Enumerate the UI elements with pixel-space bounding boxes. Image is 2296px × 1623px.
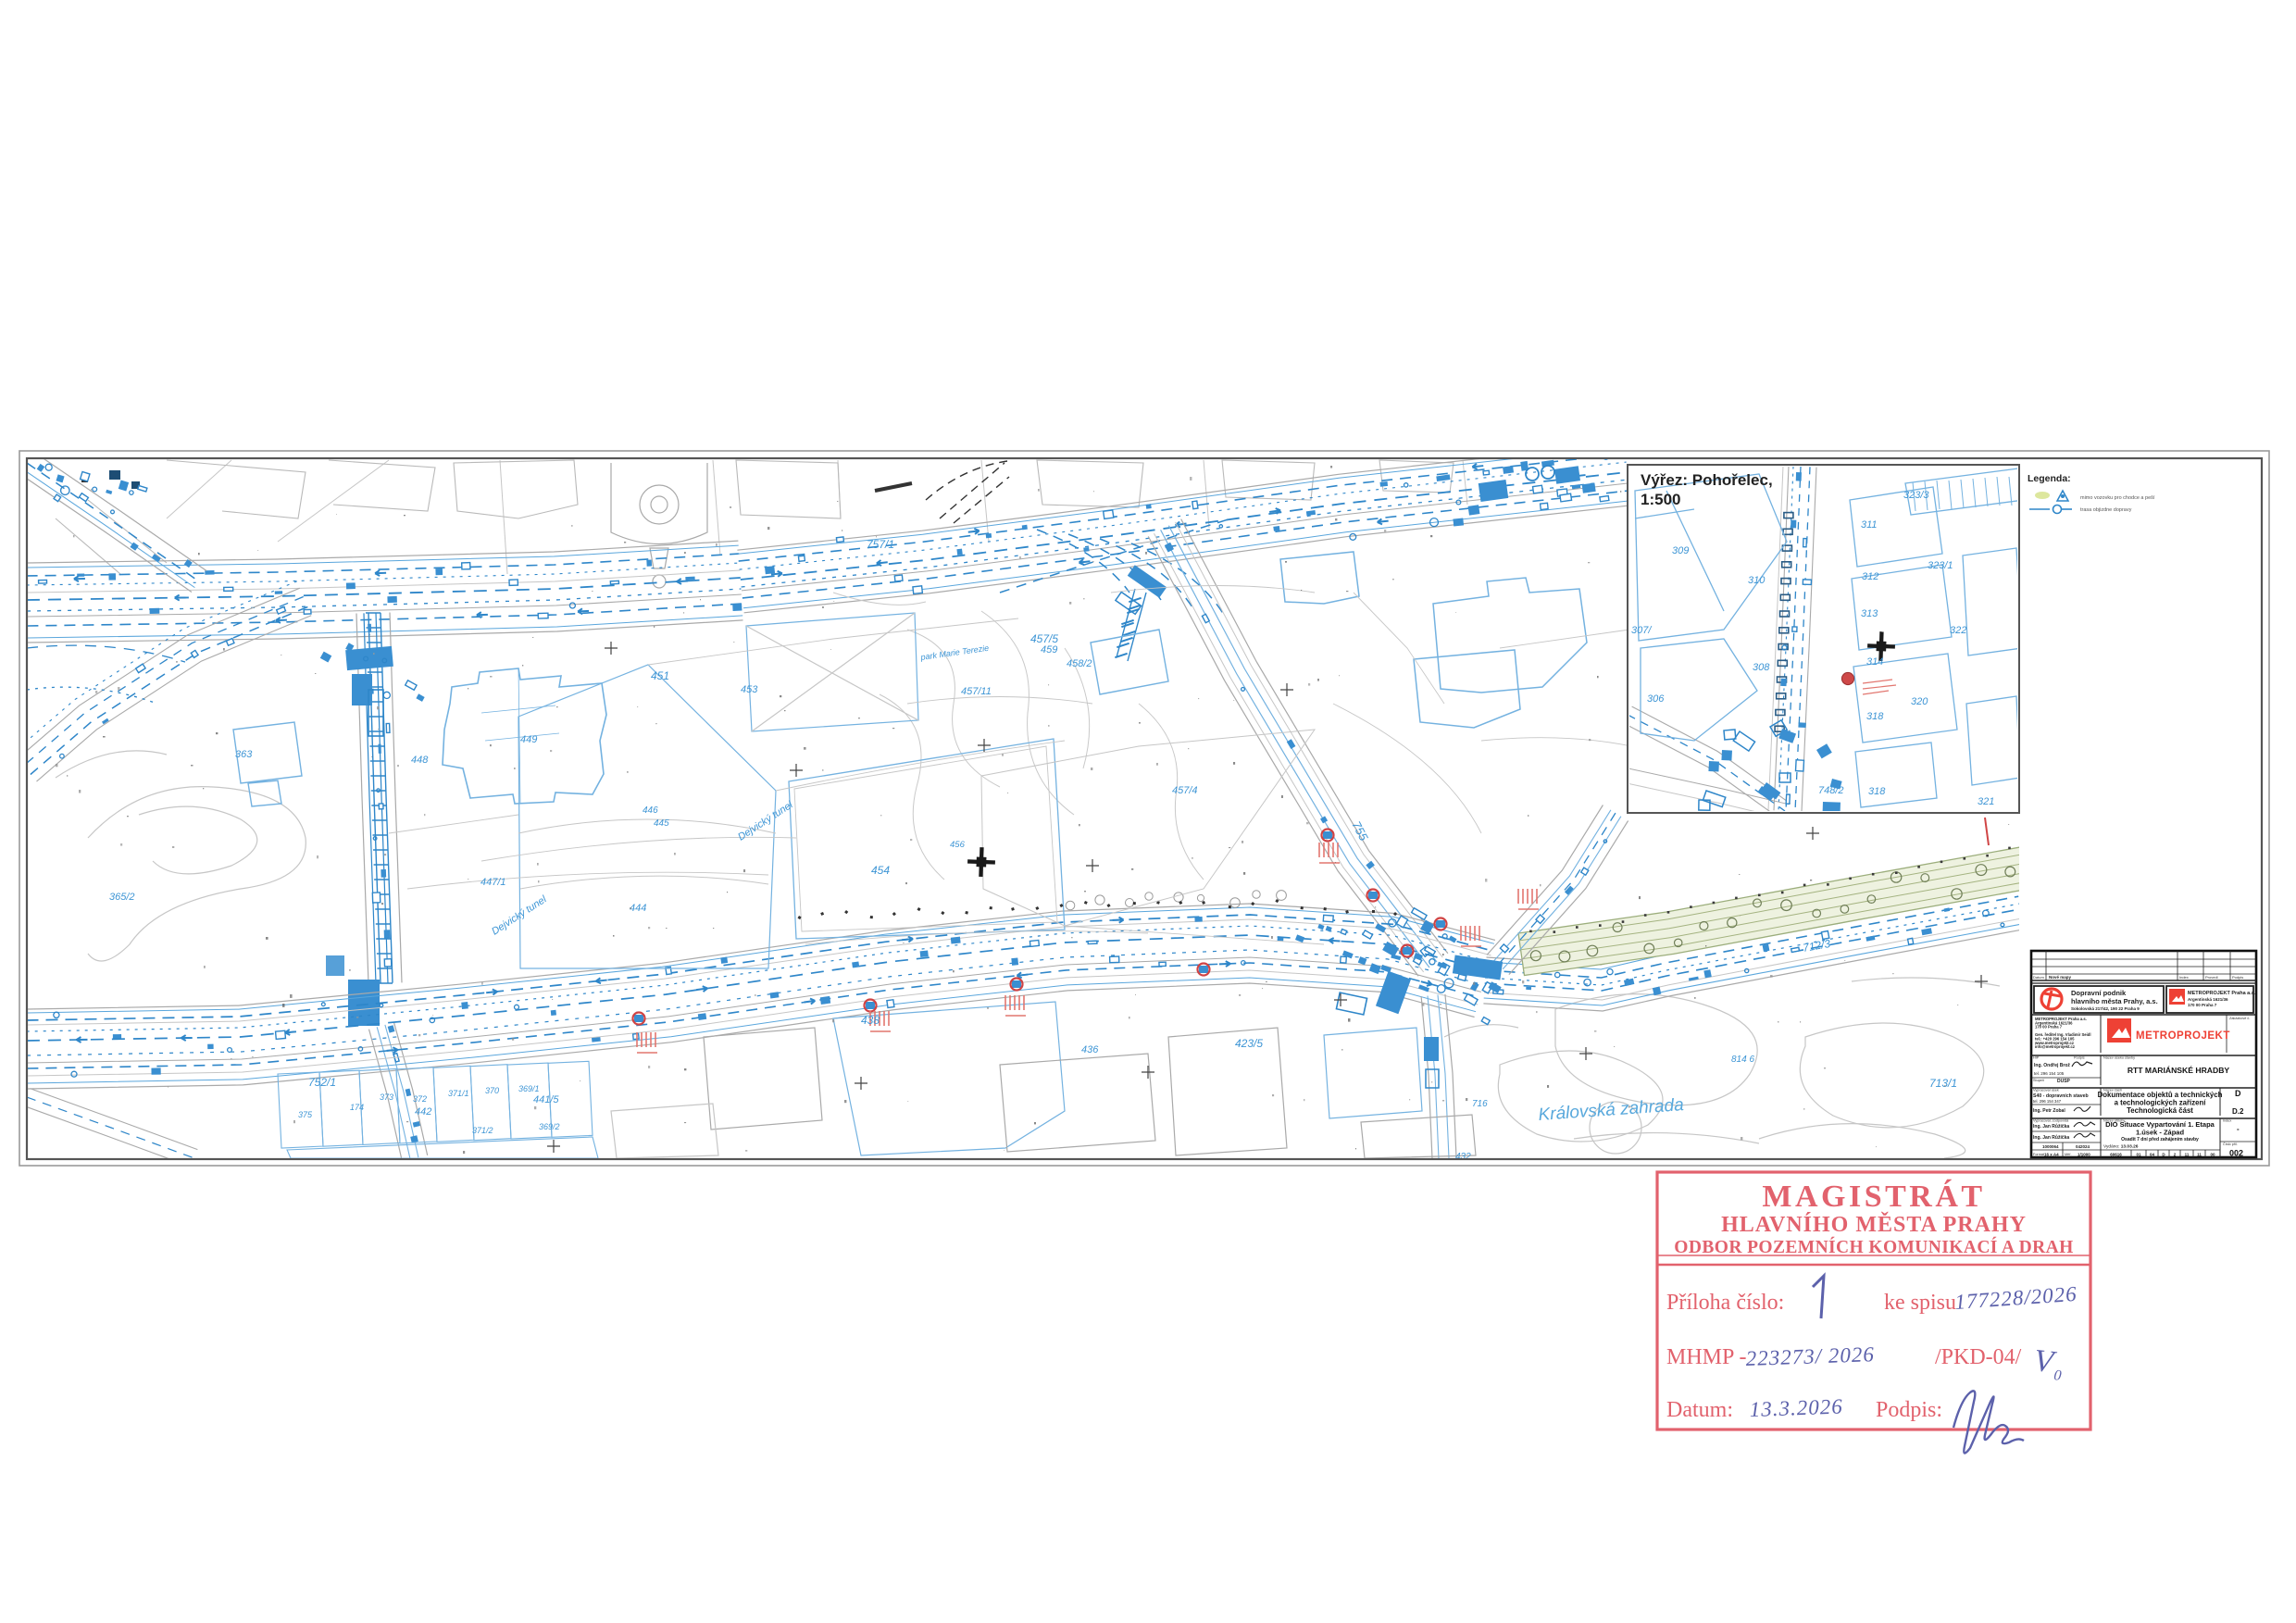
- svg-text:174: 174: [350, 1103, 364, 1112]
- svg-text:442: 442: [415, 1106, 431, 1117]
- svg-text:D.2: D.2: [2232, 1107, 2244, 1116]
- svg-text:814 6: 814 6: [1731, 1055, 1754, 1065]
- svg-text:447/1: 447/1: [480, 877, 506, 888]
- svg-text:371/2: 371/2: [472, 1126, 493, 1135]
- svg-text:458/2: 458/2: [1067, 658, 1092, 669]
- svg-text:170 00 Praha 7: 170 00 Praha 7: [2188, 1003, 2217, 1007]
- svg-text:Nové mapy: Nové mapy: [2049, 975, 2072, 980]
- svg-text:trasa objizdne dopravy: trasa objizdne dopravy: [2080, 507, 2132, 513]
- svg-text:Zakázkové č.: Zakázkové č.: [2229, 1017, 2250, 1020]
- svg-text:Legenda:: Legenda:: [2028, 473, 2071, 484]
- svg-text:312: 312: [1862, 571, 1878, 582]
- svg-text:METROPROJEKT Praha a.s.: METROPROJEKT Praha a.s.: [2188, 991, 2256, 996]
- svg-text:314: 314: [1866, 656, 1883, 668]
- svg-text:713/1: 713/1: [1929, 1077, 1957, 1090]
- svg-text:Technologická část: Technologická část: [2127, 1106, 2193, 1115]
- svg-text:454: 454: [871, 864, 890, 877]
- svg-text:Datum:: Datum:: [1666, 1398, 1733, 1422]
- svg-text:757/1: 757/1: [867, 538, 894, 551]
- svg-text:Argentinská 1621/36: Argentinská 1621/36: [2188, 997, 2228, 1002]
- svg-text:MAGISTRÁT: MAGISTRÁT: [1762, 1180, 1985, 1214]
- svg-text:438: 438: [861, 1014, 880, 1027]
- svg-text:Stupeň: Stupeň: [2033, 1079, 2044, 1082]
- svg-text:716: 716: [1472, 1099, 1488, 1109]
- svg-text:/PKD-04/: /PKD-04/: [1935, 1345, 2022, 1369]
- svg-text:HLAVNÍHO MĚSTA PRAHY: HLAVNÍHO MĚSTA PRAHY: [1721, 1212, 2027, 1237]
- svg-text:D: D: [2235, 1089, 2241, 1098]
- svg-text:Index: Index: [2179, 975, 2189, 980]
- svg-text:Osadit 7 dní před zahájením st: Osadit 7 dní před zahájením stavby: [2121, 1137, 2199, 1142]
- svg-text:1.úsek - Západ: 1.úsek - Západ: [2136, 1129, 2185, 1137]
- svg-text:306: 306: [1647, 693, 1665, 705]
- svg-text:Název úseku stavby: Název úseku stavby: [2103, 1056, 2135, 1060]
- svg-text:Příloha číslo:: Příloha číslo:: [1666, 1291, 1784, 1315]
- svg-text:0: 0: [2053, 1367, 2064, 1384]
- svg-text:459: 459: [1041, 644, 1057, 655]
- svg-text:Číslo příl.: Číslo příl.: [2223, 1142, 2238, 1146]
- svg-text:ke spisu: ke spisu: [1884, 1291, 1956, 1315]
- svg-text:Datum: Datum: [2033, 975, 2044, 980]
- svg-text:1:500: 1:500: [1641, 491, 1680, 508]
- svg-text:tel. 296 154 347: tel. 296 154 347: [2033, 1099, 2062, 1104]
- svg-text:369/1: 369/1: [518, 1084, 540, 1093]
- svg-text:ODBOR POZEMNÍCH KOMUNIKACÍ A D: ODBOR POZEMNÍCH KOMUNIKACÍ A DRAH: [1674, 1237, 2073, 1257]
- svg-text:16 x A4: 16 x A4: [2044, 1153, 2059, 1157]
- svg-text:Podpis: Podpis: [2074, 1056, 2085, 1060]
- svg-text:456: 456: [950, 840, 966, 850]
- svg-text:60616: 60616: [2110, 1153, 2122, 1157]
- svg-text:446: 446: [643, 805, 658, 816]
- svg-text:hlavního města Prahy, a.s.: hlavního města Prahy, a.s.: [2071, 997, 2158, 1005]
- svg-text:311: 311: [1861, 519, 1878, 531]
- svg-text:375: 375: [298, 1110, 313, 1119]
- svg-text:423/5: 423/5: [1235, 1037, 1263, 1050]
- svg-text:Vypracoval, zodpovídá: Vypracoval, zodpovídá: [2033, 1119, 2069, 1123]
- svg-text:370: 370: [485, 1086, 499, 1095]
- svg-text:451: 451: [651, 669, 669, 682]
- svg-text:Podpis: Podpis: [2232, 975, 2243, 980]
- svg-text:info@metroprojekt.cz: info@metroprojekt.cz: [2035, 1044, 2075, 1049]
- svg-text:363: 363: [235, 749, 253, 760]
- svg-text:457/11: 457/11: [961, 686, 992, 697]
- svg-text:RTT MARIÁNSKÉ HRADBY: RTT MARIÁNSKÉ HRADBY: [2128, 1066, 2230, 1075]
- svg-text:453: 453: [741, 684, 758, 695]
- svg-text:Dopravní podnik: Dopravní podnik: [2071, 989, 2127, 997]
- svg-text:00: 00: [2210, 1153, 2215, 1157]
- svg-text:323/1: 323/1: [1928, 560, 1953, 571]
- svg-text:Index: Index: [2223, 1119, 2231, 1123]
- svg-text:MHMP -: MHMP -: [1666, 1345, 1746, 1369]
- svg-text:170 00 Praha 7: 170 00 Praha 7: [2035, 1025, 2063, 1030]
- svg-text:372: 372: [413, 1094, 427, 1104]
- svg-text:436: 436: [1081, 1044, 1099, 1055]
- svg-text:318: 318: [1868, 786, 1886, 797]
- svg-text:04: 04: [2150, 1153, 2155, 1157]
- svg-text:310: 310: [1748, 575, 1766, 586]
- svg-text:13.3.2026: 13.3.2026: [1749, 1394, 1843, 1421]
- svg-text:308: 308: [1753, 662, 1770, 673]
- svg-text:Ing. Petr Zobal: Ing. Petr Zobal: [2033, 1108, 2065, 1114]
- svg-text:11: 11: [2197, 1153, 2202, 1157]
- svg-text:Sokolovská 217/42, 190 22 Pra: Sokolovská 217/42, 190 22 Praha 9: [2071, 1006, 2140, 1011]
- svg-text:457/4: 457/4: [1172, 785, 1198, 796]
- svg-text:Ing. Ondřej Brož: Ing. Ondřej Brož: [2034, 1063, 2070, 1068]
- svg-text:318: 318: [1866, 711, 1884, 722]
- svg-text:mimo vozovku pro chodce a peší: mimo vozovku pro chodce a peší: [2080, 495, 2155, 501]
- svg-text:Vydáno: 13.03.26: Vydáno: 13.03.26: [2103, 1144, 2139, 1150]
- svg-text:DUSP: DUSP: [2057, 1079, 2071, 1084]
- svg-text:Měř.: Měř.: [2065, 1153, 2072, 1156]
- svg-text:365/2: 365/2: [109, 892, 135, 903]
- svg-text:322: 322: [1950, 625, 1966, 636]
- svg-text:449: 449: [520, 734, 537, 745]
- svg-text:Výřez: Pohořelec,: Výřez: Pohořelec,: [1641, 471, 1773, 489]
- svg-text:042024: 042024: [2076, 1144, 2090, 1149]
- svg-text:HIP: HIP: [2033, 1056, 2040, 1060]
- svg-text:1/1000: 1/1000: [2078, 1153, 2090, 1157]
- svg-text:309: 309: [1672, 545, 1689, 556]
- svg-text:371/1: 371/1: [448, 1089, 469, 1098]
- svg-text:444: 444: [630, 903, 646, 914]
- svg-text:307/: 307/: [1631, 625, 1652, 636]
- svg-text:Podpis:: Podpis:: [1876, 1398, 1942, 1422]
- svg-text:752/1: 752/1: [308, 1076, 336, 1089]
- svg-text:321: 321: [1978, 796, 1994, 807]
- svg-text:748/2: 748/2: [1818, 785, 1844, 796]
- svg-text:445: 445: [654, 818, 669, 829]
- svg-text:320: 320: [1911, 696, 1928, 707]
- svg-text:002: 002: [2229, 1149, 2243, 1158]
- svg-text:313: 313: [1861, 608, 1878, 619]
- svg-text:11: 11: [2185, 1153, 2190, 1157]
- svg-text:448: 448: [411, 755, 429, 766]
- svg-text:457/5: 457/5: [1030, 632, 1058, 645]
- svg-text:tel. 296 154 105: tel. 296 154 105: [2034, 1071, 2065, 1076]
- svg-text:Ing. Jan Růžička: Ing. Jan Růžička: [2033, 1123, 2069, 1130]
- svg-text:METROPROJEKT: METROPROJEKT: [2136, 1030, 2230, 1042]
- svg-text:441/5: 441/5: [533, 1094, 559, 1105]
- svg-text:323/3: 323/3: [1903, 490, 1929, 501]
- svg-text:Ing. Jan Růžička: Ing. Jan Růžička: [2033, 1134, 2069, 1141]
- svg-text:369/2: 369/2: [539, 1122, 560, 1131]
- svg-text:-: -: [2237, 1125, 2240, 1133]
- svg-text:373: 373: [380, 1092, 393, 1102]
- svg-text:223273/ 2026: 223273/ 2026: [1745, 1342, 1875, 1370]
- svg-text:01: 01: [2136, 1153, 2141, 1157]
- svg-text:Provedl: Provedl: [2205, 975, 2218, 980]
- svg-text:1000064: 1000064: [2042, 1144, 2059, 1149]
- svg-text:Vypracoval úsek: Vypracoval úsek: [2033, 1089, 2059, 1092]
